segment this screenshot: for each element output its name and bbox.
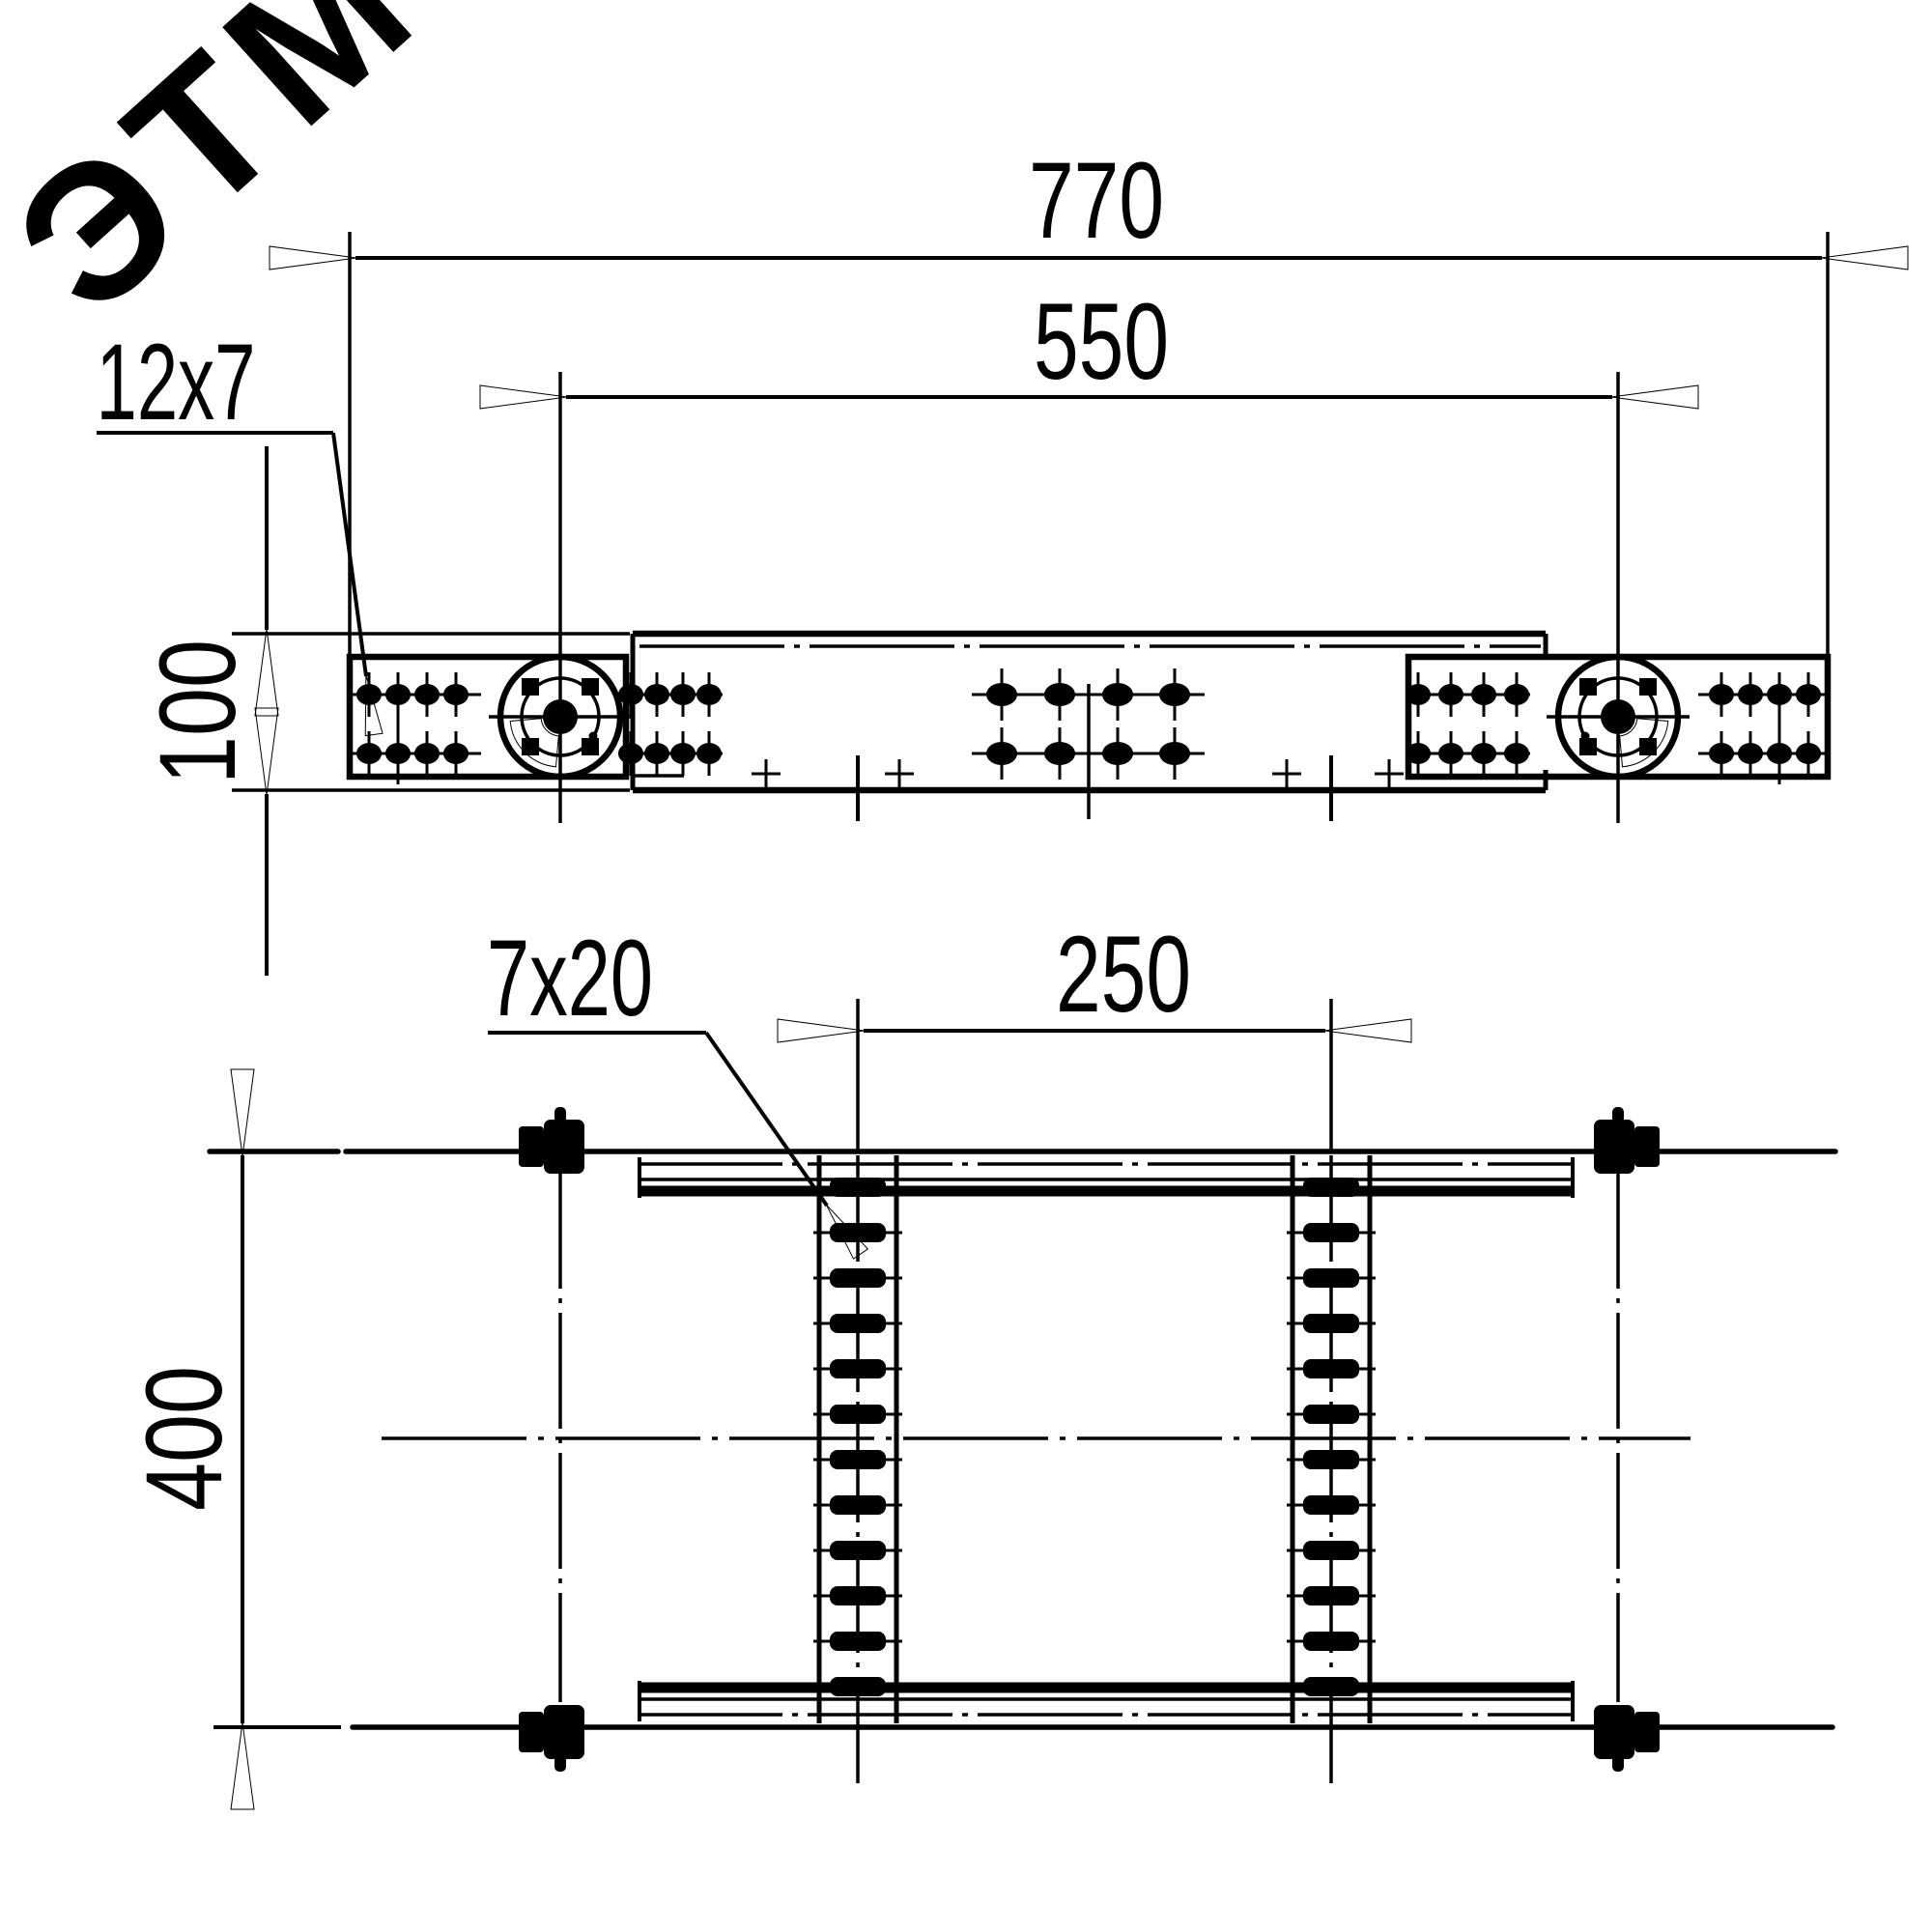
rung-slot: [813, 1405, 902, 1424]
slot: [618, 731, 643, 776]
slot: [1738, 731, 1763, 776]
slot: [1438, 731, 1463, 776]
rung-slot: [1287, 1268, 1376, 1288]
rung-slot: [813, 1495, 902, 1515]
rung-slot: [1287, 1223, 1376, 1242]
rivet-mark: [752, 759, 781, 788]
slot: [1504, 672, 1529, 717]
dim-height-label: 100: [137, 639, 258, 784]
slot: [1767, 731, 1792, 776]
slot: [385, 731, 411, 776]
top-view: 770 550 12x7 100: [97, 140, 1829, 976]
rung-slot: [1287, 1632, 1376, 1651]
slot-callout-label: 7x20: [487, 918, 653, 1038]
dim-rail-spacing: 400: [124, 1155, 341, 1727]
slot: [670, 731, 696, 776]
slot: [1471, 672, 1496, 717]
slot: [644, 731, 669, 776]
left-hinge-plate: [348, 657, 632, 784]
centerlines: [382, 1155, 1690, 1789]
technical-drawing: ЭТМ 770 550 12x7: [0, 0, 1932, 1932]
rung-slot: [813, 1268, 902, 1288]
slot: [1504, 731, 1529, 776]
dim-hinge-spacing-label: 550: [1034, 281, 1169, 402]
rung-slot: [813, 1541, 902, 1560]
rung-slot: [813, 1586, 902, 1605]
dim-overall-width-label: 770: [1029, 140, 1164, 261]
slot: [1796, 731, 1821, 776]
slot-callout-label: 12x7: [97, 322, 256, 442]
bolt: [519, 1705, 584, 1772]
slot: [1438, 672, 1463, 717]
slot: [696, 731, 722, 776]
rivet-mark: [885, 759, 914, 788]
rung-slot: [1287, 1405, 1376, 1424]
top-rail: [210, 1151, 1835, 1198]
rung-slot: [1287, 1314, 1376, 1333]
slot: [385, 672, 411, 717]
bolt: [1594, 1107, 1660, 1174]
rung-slot: [1287, 1586, 1376, 1605]
slot: [1796, 672, 1821, 717]
rung-slot: [813, 1359, 902, 1378]
watermark-text: ЭТМ: [0, 0, 459, 355]
rung-slot: [813, 1314, 902, 1333]
rung-slot: [1287, 1541, 1376, 1560]
slot: [443, 672, 469, 717]
hole: [1088, 727, 1148, 780]
hole: [1145, 668, 1205, 721]
hole: [1088, 668, 1148, 721]
rung-slot: [813, 1223, 902, 1242]
slot: [1471, 731, 1496, 776]
rung-slot: [1287, 1677, 1376, 1696]
slot: [414, 731, 440, 776]
dim-rung-spacing: 250: [858, 914, 1331, 1151]
bolt: [519, 1107, 584, 1174]
rung-slot: [813, 1450, 902, 1469]
slot: [356, 731, 382, 776]
slot: [696, 672, 722, 717]
drawing-page: ЭТМ 770 550 12x7: [0, 0, 1932, 1932]
slot: [1709, 672, 1734, 717]
slot: [1767, 672, 1792, 717]
bolt: [1594, 1705, 1660, 1772]
channel-fasteners: [618, 672, 1530, 776]
hole: [1145, 727, 1205, 780]
rung-slot: [1287, 1495, 1376, 1515]
slot: [356, 672, 382, 717]
slot: [644, 672, 669, 717]
slot: [1738, 672, 1763, 717]
dim-rail-spacing-label: 400: [124, 1366, 244, 1511]
rivet-mark: [1375, 759, 1404, 788]
slot: [670, 672, 696, 717]
bottom-view: 250 7x20 400: [124, 914, 1835, 1789]
hole: [972, 668, 1032, 721]
rivet-mark: [1272, 759, 1301, 788]
hole: [972, 727, 1032, 780]
rung-slot: [1287, 1359, 1376, 1378]
slot: [443, 731, 469, 776]
hole: [1030, 727, 1090, 780]
hole: [1030, 668, 1090, 721]
label-slot-12x7: 12x7: [97, 322, 367, 676]
rung-slot: [813, 1632, 902, 1651]
slot: [414, 672, 440, 717]
rung-slot: [813, 1677, 902, 1696]
rung-slot: [1287, 1450, 1376, 1469]
slot: [1709, 731, 1734, 776]
watermark-logo: ЭТМ: [0, 0, 459, 355]
dim-rung-spacing-label: 250: [1056, 914, 1191, 1035]
